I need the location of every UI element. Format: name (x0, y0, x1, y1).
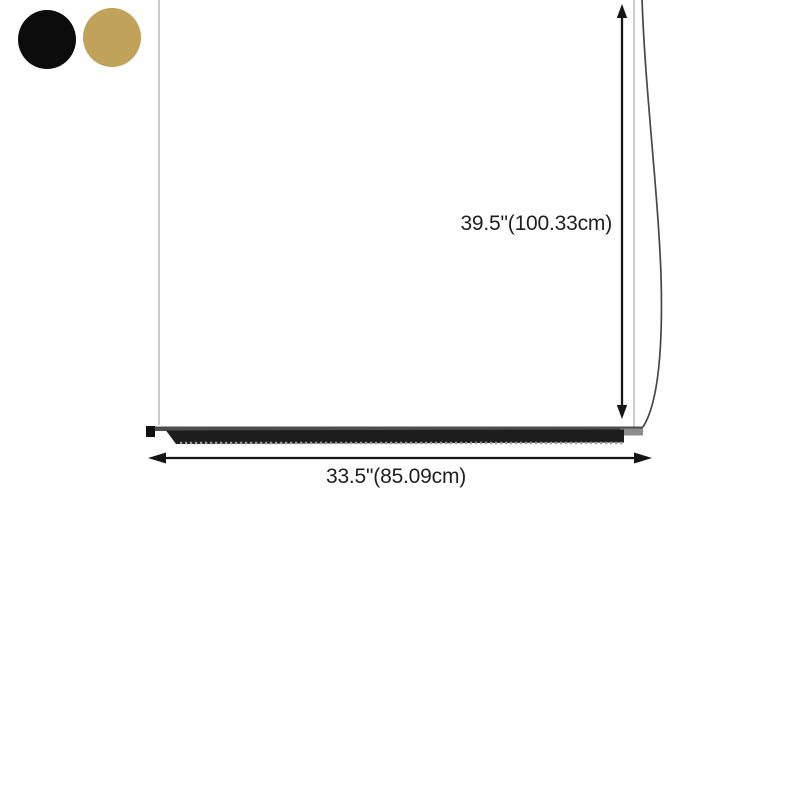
height-dimension-label: 39.5"(100.33cm) (460, 211, 612, 236)
product-dimension-image: 39.5"(100.33cm) 33.5"(85.09cm) (0, 0, 800, 800)
width-dimension-arrow (148, 453, 652, 464)
pendant-light-drawing (0, 0, 800, 800)
bar-left-endcap (146, 426, 155, 437)
width-dimension-label: 33.5"(85.09cm) (296, 464, 496, 489)
height-dimension-arrow (617, 4, 627, 419)
power-cord (642, 0, 661, 427)
